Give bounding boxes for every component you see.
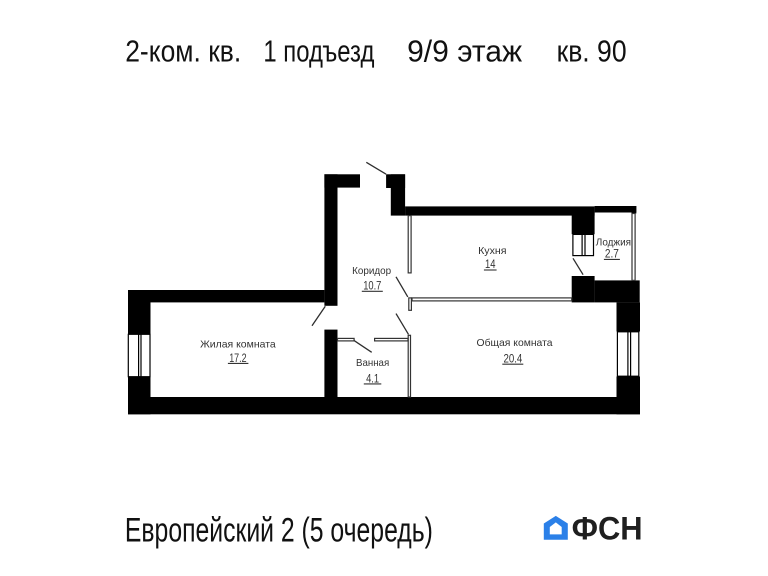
svg-text:Лоджия: Лоджия bbox=[596, 237, 631, 249]
svg-text:2-ком. кв.: 2-ком. кв. bbox=[125, 33, 241, 68]
svg-text:Ванная: Ванная bbox=[356, 357, 389, 369]
svg-text:ФСН: ФСН bbox=[572, 511, 643, 547]
svg-text:Жилая комната: Жилая комната bbox=[200, 338, 276, 350]
svg-text:Кухня: Кухня bbox=[478, 245, 506, 257]
svg-text:14: 14 bbox=[485, 259, 496, 271]
svg-text:10.7: 10.7 bbox=[363, 280, 381, 292]
svg-text:2.7: 2.7 bbox=[605, 249, 619, 261]
svg-text:Общая комната: Общая комната bbox=[477, 337, 553, 349]
svg-text:Европейский 2 (5 очередь): Европейский 2 (5 очередь) bbox=[125, 512, 433, 550]
svg-text:Коридор: Коридор bbox=[352, 265, 391, 277]
svg-text:9/9 этаж: 9/9 этаж bbox=[407, 33, 522, 68]
svg-text:кв. 90: кв. 90 bbox=[557, 33, 627, 68]
svg-text:1 подъезд: 1 подъезд bbox=[263, 33, 374, 68]
